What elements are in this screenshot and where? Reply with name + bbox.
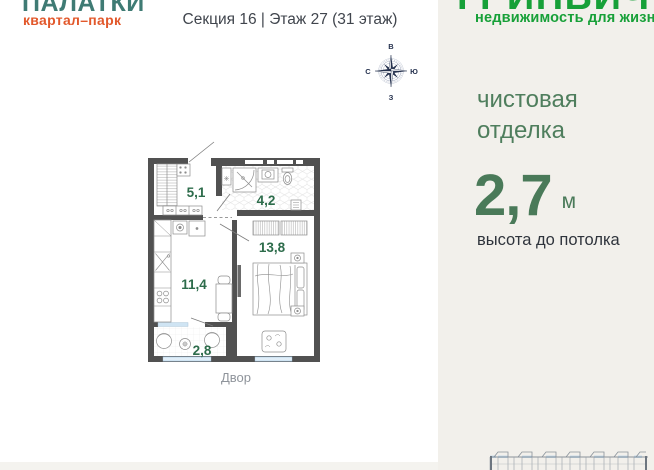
finish-line-2: отделка (477, 115, 578, 146)
room-area-kitchen: 11,4 (181, 277, 207, 292)
compass-label-top: В (388, 42, 394, 51)
building-section-plan (488, 450, 650, 470)
yard-label: Двор (146, 370, 326, 385)
section-floor-title: Секция 16 | Этаж 27 (31 этаж) (150, 11, 430, 29)
finish-line-1: чистовая (477, 84, 578, 115)
room-area-hallway: 5,1 (187, 185, 206, 200)
floor-plan: 5,1 4,2 13,8 11,4 2,8 (145, 134, 323, 372)
compass-label-bottom: З (389, 93, 394, 102)
developer-logo-subtitle: квартал–парк (23, 12, 121, 28)
agency-logo: ГРИНВИЧ (457, 0, 652, 9)
room-area-balcony: 2,8 (193, 343, 212, 358)
agency-logo-title: ГРИНВИЧ (457, 0, 652, 9)
ceiling-height: 2,7 м (474, 167, 576, 225)
agency-logo-subtitle: недвижимость для жизни (475, 10, 654, 26)
compass-label-left: С (365, 67, 371, 76)
room-area-bathroom: 4,2 (257, 193, 276, 208)
info-panel: ГРИНВИЧ недвижимость для жизни чистовая … (438, 0, 654, 470)
compass-label-right: Ю (410, 67, 418, 76)
ceiling-height-caption: высота до потолка (477, 231, 620, 250)
compass-rose-icon: В Ю З С (356, 38, 426, 102)
finish-type-label: чистовая отделка (477, 84, 578, 146)
ceiling-height-unit: м (562, 190, 576, 214)
kitchen-furniture (154, 220, 232, 322)
ceiling-height-value: 2,7 (474, 167, 552, 225)
room-area-living: 13,8 (259, 240, 286, 255)
developer-logo: ПАЛАТКИ (22, 0, 162, 12)
developer-logo-title: ПАЛАТКИ (22, 0, 162, 12)
listing-card: ПАЛАТКИ квартал–парк Секция 16 | Этаж 27… (0, 0, 654, 470)
bottom-divider (0, 462, 440, 470)
